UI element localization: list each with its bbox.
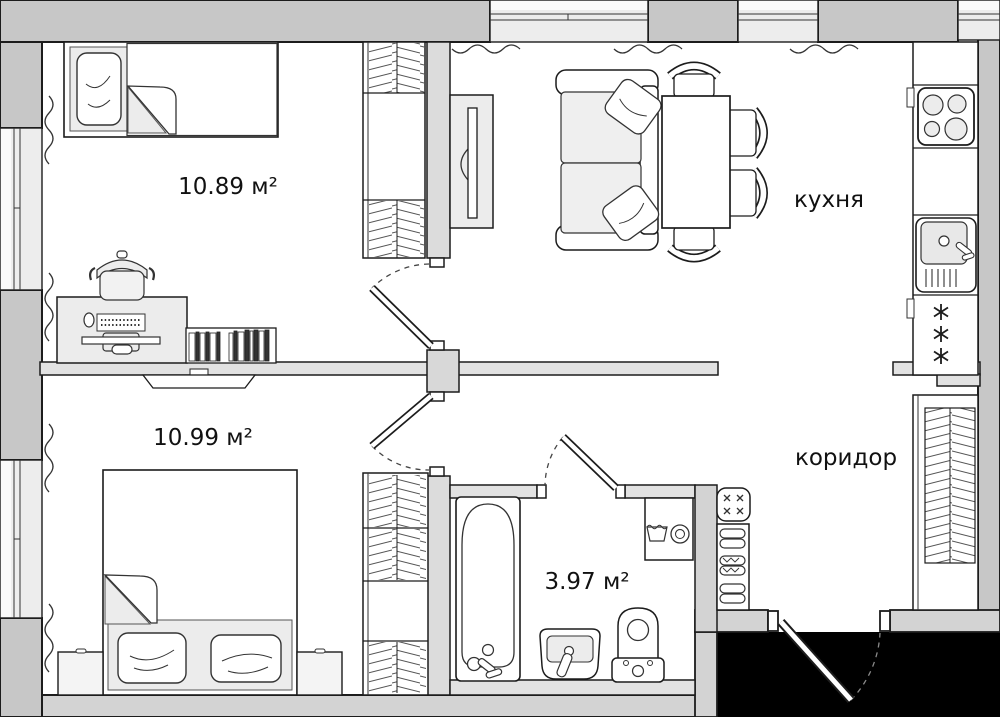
kitchen-name-label: кухня [794,187,864,213]
chair-icon [670,226,718,258]
sofa-icon [556,70,664,250]
pouf-icon [717,488,750,521]
double-bed-icon [103,470,297,695]
pillow-icon [211,635,281,682]
books-icon [186,328,276,363]
radiator-icon [45,604,53,672]
mouse-icon [84,313,94,327]
tv-stand-icon [450,95,493,228]
shoe-rack-icon [717,524,749,610]
corridor-name-label: коридор [795,445,897,471]
dining-set [662,66,764,258]
bedroom-1-area-label: 10.89 м² [178,174,278,200]
bedroom-1-furniture [57,42,425,363]
corridor-furniture [717,395,978,610]
washbasin-icon [540,629,600,679]
window-icon [958,0,1000,40]
nightstand-icon [297,649,342,695]
keyboard-icon [97,314,145,331]
bathroom-area-label: 3.97 м² [544,569,629,595]
kitchen-counter [907,42,978,375]
pillow-icon [77,53,121,125]
radiator-icon [452,45,520,53]
pillow-icon [118,633,186,683]
sink-icon [916,218,976,292]
wardrobe-icon [363,473,428,695]
bottom-wall [42,695,717,717]
radiator-icon [45,96,53,164]
window-icon [0,460,42,618]
door-pillar [427,350,459,392]
single-bed-icon [64,42,278,137]
door-swing-icon [545,437,616,488]
wardrobe-icon [913,395,978,610]
chair-icon [670,66,718,98]
dining-table-icon [662,96,730,228]
window-icon [738,0,818,42]
tv-icon [468,108,477,218]
toilet-icon [612,608,664,682]
floor-plan: 10.89 м² 10.99 м² 3.97 м² кухня коридор [0,0,1000,717]
floor-plan-canvas: 10.89 м² 10.99 м² 3.97 м² кухня коридор [0,0,1000,717]
radiator-icon [45,273,53,341]
entry-void [717,632,1000,717]
door-swing-icon [372,264,431,346]
radiator-icon [45,424,53,492]
office-chair-icon [90,251,154,300]
stove-icon [918,88,974,145]
kitchen-furniture [450,42,978,375]
door-swing-icon [372,396,431,470]
bedroom-2-furniture [58,369,428,695]
bedroom-2-area-label: 10.99 м² [153,425,253,451]
radiator-icon [614,45,682,53]
window-icon [0,128,42,290]
radiator-icon [790,45,858,53]
desk-icon [57,297,187,363]
bathtub-icon [456,497,520,681]
nightstand-icon [58,649,103,695]
washing-machine-icon [645,498,693,560]
window-icon [490,0,648,42]
wardrobe-icon [363,42,425,258]
